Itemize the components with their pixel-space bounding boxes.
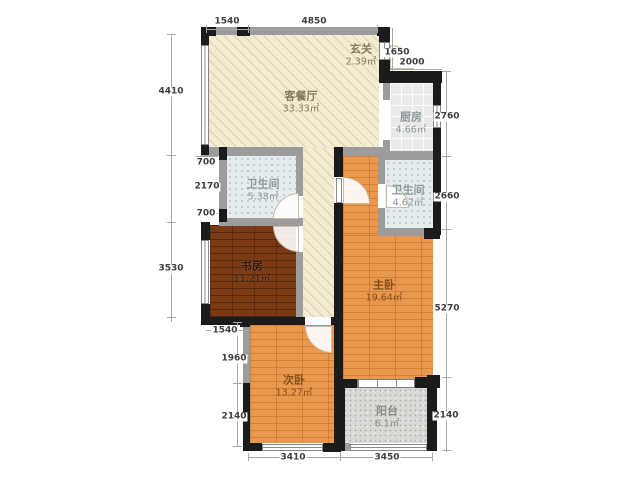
sliding-door xyxy=(357,379,415,388)
dimension-label: 3410 xyxy=(279,454,306,463)
room-name: 玄关 xyxy=(346,43,377,57)
dimension-label: 700 xyxy=(196,210,217,219)
dimension-tick xyxy=(233,322,242,323)
wall-segment xyxy=(296,147,303,196)
room-name: 书房 xyxy=(234,260,271,274)
dimension-tick xyxy=(248,25,249,33)
hallway-floor xyxy=(303,148,334,317)
room-area: 4.62㎡ xyxy=(392,198,425,210)
room-master-floor xyxy=(343,235,433,382)
dimension-tick xyxy=(442,229,451,230)
wall-segment xyxy=(383,140,390,152)
dimension-line xyxy=(390,69,442,70)
wall-segment xyxy=(334,203,343,383)
dimension-tick xyxy=(432,453,433,461)
room-name: 卫生间 xyxy=(392,184,425,198)
wall-segment xyxy=(378,151,440,160)
room-label-entry: 玄关 2.39㎡ xyxy=(346,43,377,70)
dimension-tick xyxy=(442,71,451,72)
wall-segment xyxy=(343,379,357,388)
dimension-tick xyxy=(206,25,207,33)
room-name: 客餐厅 xyxy=(283,90,320,104)
dimension-label: 2000 xyxy=(398,59,425,68)
room-label-kitchen: 厨房 4.66㎡ xyxy=(396,111,427,138)
dimension-line xyxy=(171,34,172,322)
dimension-tick xyxy=(377,25,378,33)
door-leaf xyxy=(336,178,342,203)
wall-segment xyxy=(334,147,343,177)
window xyxy=(262,444,323,451)
dimension-tick xyxy=(442,156,451,157)
dimension-tick xyxy=(167,34,176,35)
dimension-label: 3530 xyxy=(157,265,184,274)
room-name: 阳台 xyxy=(375,405,400,419)
wall-segment xyxy=(201,222,210,240)
dimension-label: 3450 xyxy=(373,454,400,463)
wall-segment xyxy=(378,156,385,184)
dimension-label: 4850 xyxy=(300,18,327,27)
wall-segment xyxy=(227,147,303,156)
floor-plan: 1540 4850 1650 2000 2760 2660 5270 2140 … xyxy=(0,0,641,481)
room-area: 33.33㎡ xyxy=(283,104,320,116)
room-name: 厨房 xyxy=(396,111,427,125)
dimension-label: 1650 xyxy=(383,49,410,58)
room-area: 2.39㎡ xyxy=(346,57,377,69)
dimension-label: 2170 xyxy=(193,183,220,192)
wall-segment xyxy=(383,83,390,100)
window xyxy=(201,45,209,145)
room-area: 5.38㎡ xyxy=(247,192,280,204)
room-label-bath2: 卫生间 4.62㎡ xyxy=(392,184,425,211)
dimension-tick xyxy=(340,453,341,461)
wall-segment xyxy=(427,375,440,388)
dimension-label: 1960 xyxy=(220,355,247,364)
room-area: 6.1㎡ xyxy=(375,419,400,431)
wall-segment xyxy=(219,147,227,160)
room-area: 4.66㎡ xyxy=(396,125,427,137)
dimension-label: 2140 xyxy=(432,412,459,421)
dimension-label: 2140 xyxy=(220,413,247,422)
dimension-tick xyxy=(233,383,242,384)
dimension-tick xyxy=(233,446,242,447)
room-name: 主卧 xyxy=(366,279,403,293)
room-label-second: 次卧 13.27㎡ xyxy=(276,374,313,401)
wall-segment xyxy=(243,443,262,451)
room-area: 13.27㎡ xyxy=(276,388,313,400)
wall-segment xyxy=(379,27,390,42)
dimension-tick xyxy=(167,155,176,156)
room-label-balcony: 阳台 6.1㎡ xyxy=(375,405,400,432)
wall-segment xyxy=(424,228,440,239)
room-label-master: 主卧 19.64㎡ xyxy=(366,279,403,306)
room-area: 19.64㎡ xyxy=(366,293,403,305)
wall-segment xyxy=(334,382,345,451)
dimension-label: 2760 xyxy=(433,113,460,122)
window xyxy=(201,240,209,304)
dimension-label: 1540 xyxy=(213,18,240,27)
dimension-line xyxy=(237,322,238,447)
dimension-tick xyxy=(442,450,451,451)
wall-segment xyxy=(433,128,441,235)
dimension-tick xyxy=(442,377,451,378)
dimension-tick xyxy=(167,222,176,223)
dimension-tick xyxy=(248,453,249,461)
dimension-tick xyxy=(167,317,176,318)
wall-segment xyxy=(378,228,425,236)
dimension-line xyxy=(446,71,447,452)
dimension-label: 700 xyxy=(196,159,217,168)
wall-segment xyxy=(296,252,303,317)
room-label-bath1: 卫生间 5.38㎡ xyxy=(247,178,280,205)
wall-segment xyxy=(433,80,441,105)
window xyxy=(350,444,427,451)
dimension-line xyxy=(206,29,378,30)
wall-segment xyxy=(378,208,385,229)
room-area: 11.21㎡ xyxy=(234,274,271,286)
wall-segment xyxy=(219,218,303,226)
room-label-study: 书房 11.21㎡ xyxy=(234,260,271,287)
wall-segment xyxy=(219,209,227,222)
room-label-living: 客餐厅 33.33㎡ xyxy=(283,90,320,117)
wall-segment xyxy=(201,317,305,325)
room-name: 次卧 xyxy=(276,374,313,388)
dimension-label: 5270 xyxy=(433,305,460,314)
wall-segment xyxy=(201,145,209,155)
room-name: 卫生间 xyxy=(247,178,280,192)
dimension-label: 1540 xyxy=(211,327,238,336)
dimension-label: 4410 xyxy=(157,88,184,97)
dimension-label: 2660 xyxy=(433,193,460,202)
